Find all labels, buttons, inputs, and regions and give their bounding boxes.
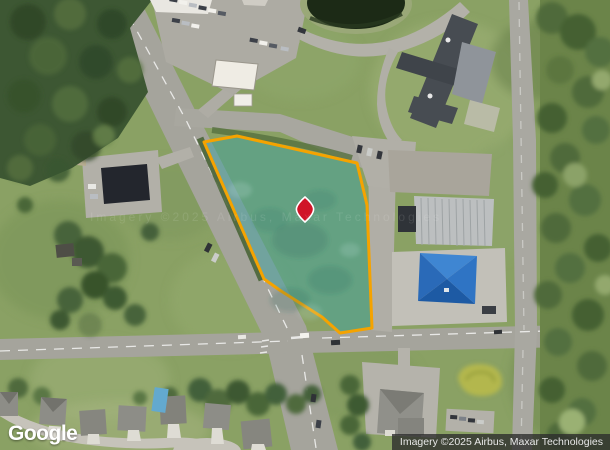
- office-driveway: [398, 348, 410, 366]
- google-logo[interactable]: Google: [8, 422, 77, 446]
- vegetation-east-band: [532, 0, 610, 450]
- map-canvas[interactable]: Imagery ©2025 Airbus, Maxar Technologies…: [0, 0, 610, 450]
- blue-roof-building: [418, 253, 477, 304]
- house: [241, 419, 273, 450]
- small-white-structure: [234, 94, 252, 106]
- house: [0, 392, 18, 416]
- strip-building: [212, 60, 258, 90]
- dumpster: [482, 306, 496, 314]
- satellite-imagery: [0, 0, 610, 450]
- imagery-attribution: Imagery ©2025 Airbus, Maxar Technologies: [392, 434, 610, 450]
- loading-dock: [398, 206, 416, 232]
- southeast-office-building: [377, 389, 424, 437]
